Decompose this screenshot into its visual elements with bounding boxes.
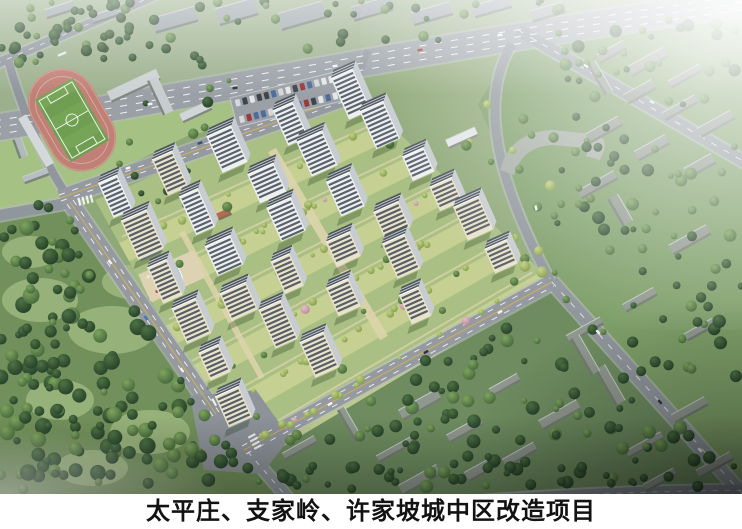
aerial-photo <box>0 0 742 494</box>
caption-bar: 太平庄、支家岭、许家坡城中区改造项目 <box>0 494 742 529</box>
project-rendering-page: 太平庄、支家岭、许家坡城中区改造项目 <box>0 0 742 529</box>
aerial-scene-svg <box>0 0 742 494</box>
project-title-caption: 太平庄、支家岭、许家坡城中区改造项目 <box>146 494 596 529</box>
